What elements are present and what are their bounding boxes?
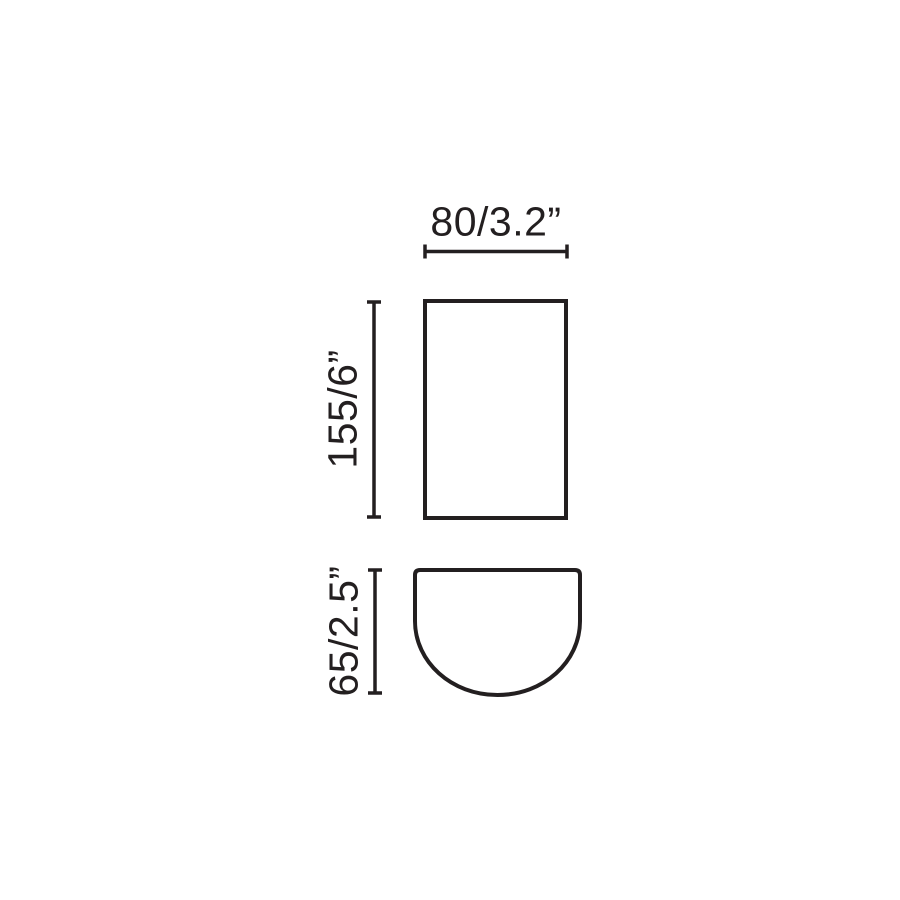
dimension-diagram: 80/3.2” 155/6” 65/2.5” xyxy=(0,0,900,900)
width-dimension-line xyxy=(425,245,567,259)
diagram-drawing xyxy=(0,0,900,900)
height-dimension-line xyxy=(367,302,381,517)
depth-dimension-line xyxy=(368,570,382,693)
top-view-outline xyxy=(415,570,580,695)
width-dimension-label: 80/3.2” xyxy=(430,202,561,243)
height-dimension-label: 155/6” xyxy=(323,349,364,468)
front-view-outline xyxy=(425,301,566,518)
diagram-line-group xyxy=(367,245,580,696)
depth-dimension-label: 65/2.5” xyxy=(324,565,365,696)
